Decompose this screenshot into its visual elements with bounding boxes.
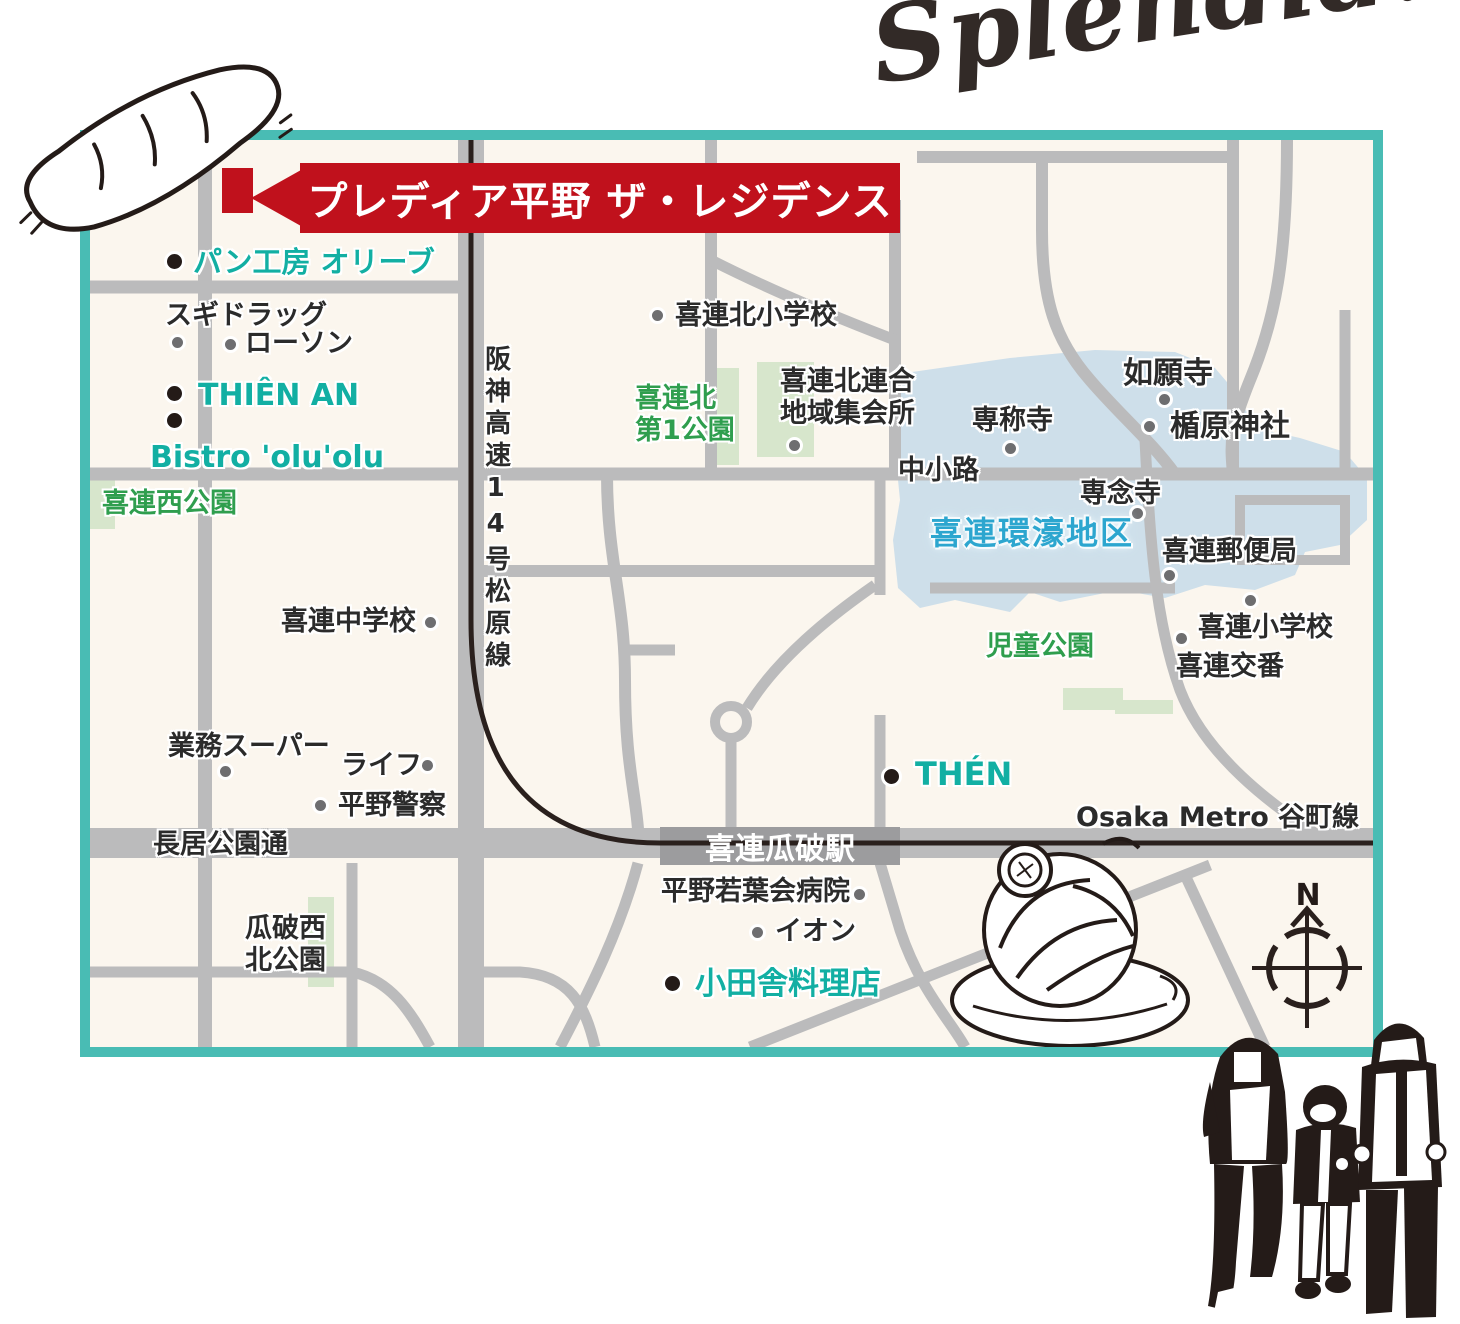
park-label-kirekita-dai1: 喜連北 第1公園	[635, 383, 735, 447]
handwritten-note: Splendid!	[862, 0, 1460, 108]
poi-label-lawson: ローソン	[245, 328, 353, 360]
poi-label-life: ライフ	[341, 750, 422, 782]
poi-label-kire-elementary: 喜連小学校	[1198, 612, 1333, 644]
poi-label-bakery-olive: パン工房 オリーブ	[193, 245, 435, 279]
street-label-nakashoji: 中小路	[898, 455, 979, 487]
poi-dot	[1141, 418, 1158, 435]
area-map: プレディア平野 ザ・レジデンス パン工房 オリーブ スギドラッグ ローソン TH…	[80, 130, 1383, 1057]
poi-dot	[851, 886, 868, 903]
poi-dot	[1173, 630, 1190, 647]
poi-dot	[649, 307, 666, 324]
poi-label-nyogan-ji: 如願寺	[1123, 356, 1213, 391]
poi-dot	[1242, 592, 1259, 609]
highway-label: 阪神高速14号松原線	[480, 345, 511, 673]
poi-dot	[164, 383, 185, 404]
poi-label-tatehara-shrine: 楯原神社	[1170, 409, 1290, 444]
page: { "decorations": { "handwritten_note": "…	[0, 0, 1460, 1324]
poi-dot	[1156, 391, 1173, 408]
poi-label-sensho-ji: 専称寺	[972, 405, 1053, 437]
poi-label-post-office: 喜連郵便局	[1162, 536, 1297, 568]
poi-label-community-hall: 喜連北連合 地域集会所	[780, 366, 915, 430]
poi-label-kire-koban: 喜連交番	[1176, 651, 1284, 683]
poi-label-sennen-ji: 専念寺	[1080, 478, 1161, 510]
poi-label-hirano-police: 平野警察	[338, 790, 446, 822]
poi-label-thien-an: THIÊN AN	[198, 378, 359, 413]
compass-icon	[1252, 909, 1362, 1028]
poi-dot	[422, 614, 439, 631]
poi-dot	[164, 410, 185, 431]
spaghetti-icon	[952, 839, 1188, 1046]
poi-label-aeon: イオン	[775, 916, 856, 948]
poi-dot	[312, 797, 329, 814]
district-label: 喜連環濠地区	[930, 515, 1134, 553]
property-banner: プレディア平野 ザ・レジデンス	[300, 163, 900, 233]
park-label-jido: 児童公園	[986, 631, 1094, 663]
poi-label-oinaka: 小田舎料理店	[695, 966, 881, 1003]
park-label-uriwari: 瓜破西 北公園	[245, 913, 326, 977]
poi-dot	[1002, 440, 1019, 457]
poi-dot	[786, 437, 803, 454]
compass-north-label: N	[1286, 878, 1330, 913]
poi-dot	[217, 763, 234, 780]
poi-dot	[1161, 567, 1178, 584]
poi-label-kire-junior-high: 喜連中学校	[281, 606, 416, 638]
poi-dot	[749, 924, 766, 941]
poi-dot	[169, 334, 186, 351]
bread-icon	[0, 58, 310, 243]
rail-line-label: Osaka Metro 谷町線	[1076, 802, 1359, 834]
family-icon	[1190, 1012, 1450, 1324]
poi-dot	[662, 973, 683, 994]
poi-dot	[164, 251, 185, 272]
street-label-nagai-koen-dori: 長居公園通	[153, 829, 288, 861]
park-label-kirenishi: 喜連西公園	[102, 488, 237, 520]
poi-dot	[222, 336, 239, 353]
poi-label-hospital: 平野若葉会病院	[661, 876, 850, 908]
poi-label-bistro-oluolu: Bistro 'olu'olu	[150, 440, 384, 475]
poi-label-kirekita-elementary: 喜連北小学校	[675, 300, 837, 332]
poi-label-then: THÉN	[915, 756, 1012, 794]
roundabout	[715, 706, 747, 738]
station-label: 喜連瓜破駅	[660, 827, 900, 865]
poi-label-gyomu-super: 業務スーパー	[168, 731, 330, 763]
poi-dot	[881, 766, 902, 787]
